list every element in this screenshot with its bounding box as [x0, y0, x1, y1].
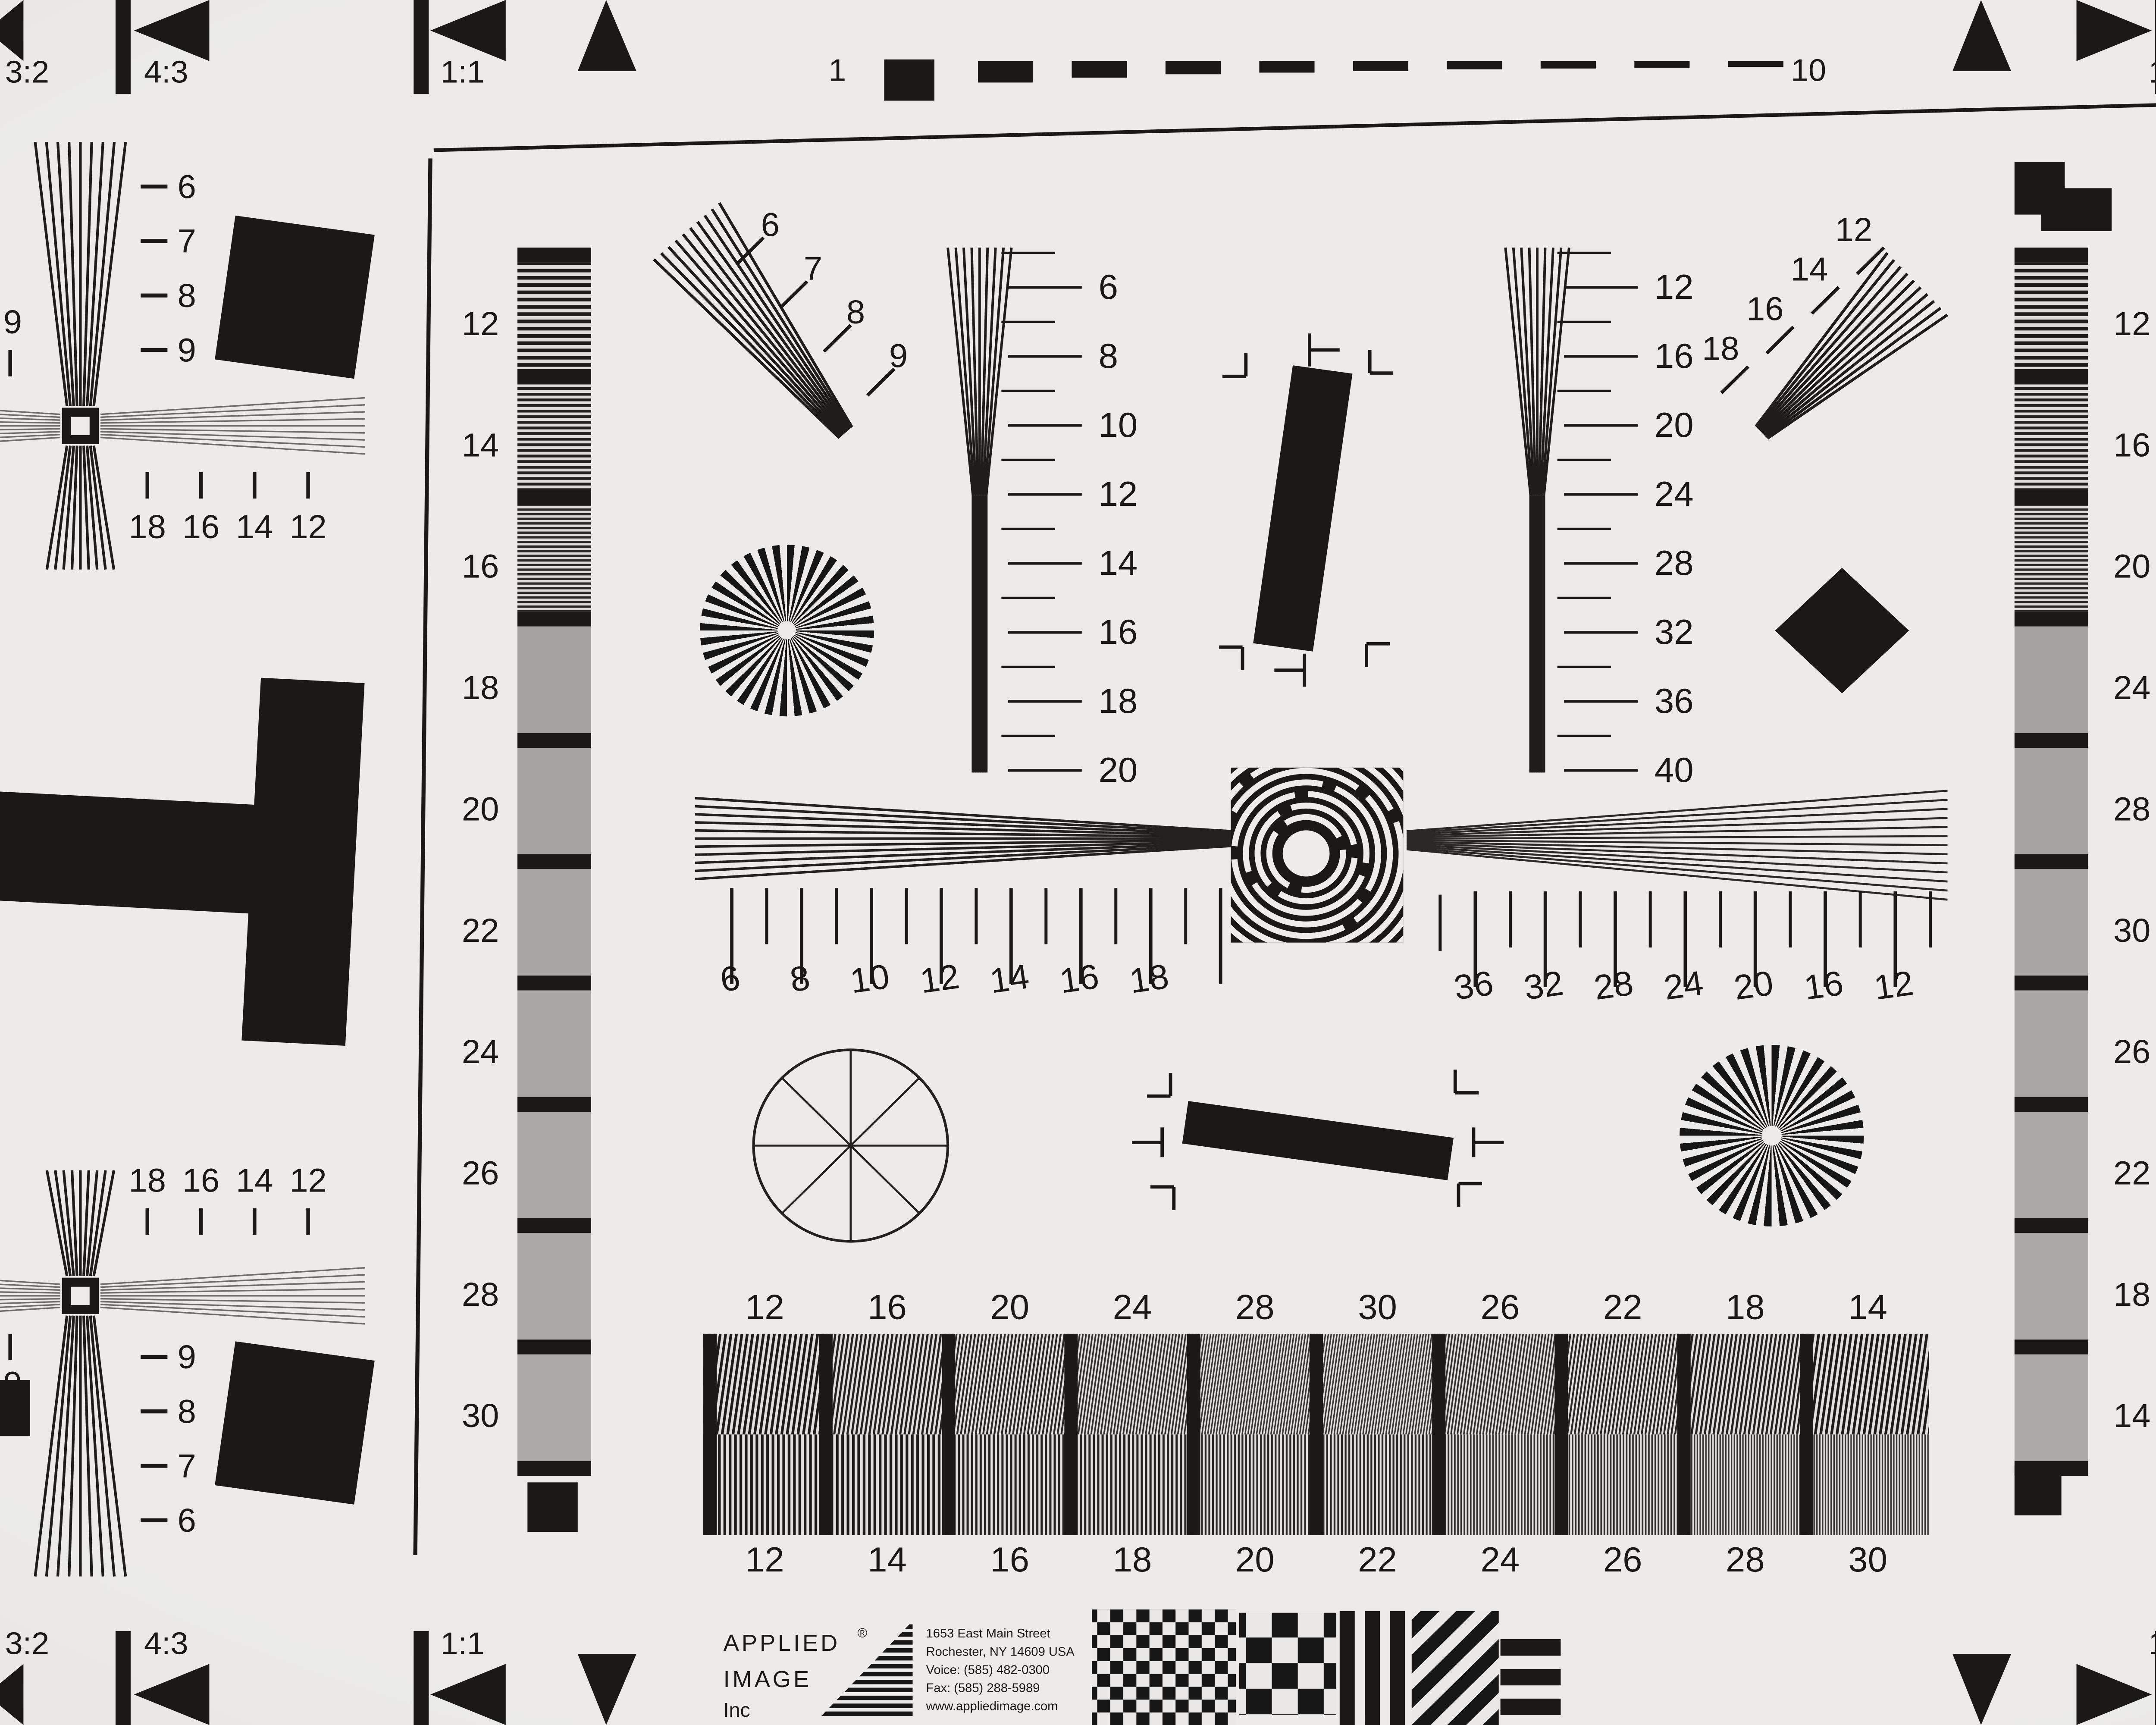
tick-mark: [306, 1208, 310, 1235]
freq-label: 24: [1480, 1541, 1520, 1579]
column-label: 30: [462, 1398, 499, 1434]
column-segment: [2015, 384, 2088, 490]
wedge-line: [1407, 791, 1947, 831]
tick-mark: [145, 472, 149, 499]
ruler-dash: [1072, 61, 1127, 78]
freq-label: 18: [1726, 1288, 1765, 1327]
cross-center-hole: [71, 1287, 90, 1305]
freq-segment: [703, 1334, 826, 1434]
tick-mark: [253, 472, 257, 499]
freq-label: 26: [1603, 1541, 1642, 1579]
freq-segment: [949, 1434, 1071, 1535]
bar: [414, 1631, 429, 1725]
tick-mark: [306, 472, 310, 499]
column-segment: [2015, 991, 2088, 1097]
column-separator: [517, 1339, 591, 1354]
freq-separator: [1310, 1334, 1323, 1535]
freq-segment: [1316, 1434, 1438, 1535]
freq-segment: [1684, 1334, 1806, 1434]
logo-wordmark: Inc: [724, 1699, 750, 1721]
scale-label: 40: [1655, 751, 1694, 789]
triangle-marker-icon: [134, 0, 210, 61]
freq-separator: [942, 1334, 955, 1535]
logo-wordmark: IMAGE: [724, 1666, 812, 1692]
column-label: 24: [462, 1034, 499, 1070]
freq-label: 24: [1113, 1288, 1152, 1327]
column-segment: [2015, 627, 2088, 733]
aspect-label: 1:1: [440, 54, 485, 89]
freq-label: 28: [1235, 1288, 1275, 1327]
column-separator: [2015, 975, 2088, 990]
test-chart-photo: 3:24:31:11:14:33:23:24:31:11:14:33:2 110…: [0, 0, 2156, 1725]
wedge-line: [780, 282, 807, 308]
freq-separator: [1187, 1334, 1200, 1535]
tilted-square: [215, 216, 375, 379]
column-segment: [517, 1355, 591, 1461]
column-separator: [2015, 612, 2088, 626]
freq-segment: [826, 1334, 948, 1434]
tick-mark: [253, 1208, 257, 1235]
column-segment: [517, 627, 591, 733]
column-label: 20: [2113, 548, 2150, 585]
wedge-line: [0, 398, 60, 414]
column-separator: [517, 1461, 591, 1476]
freq-separator: [1554, 1334, 1568, 1535]
aspect-label: 4:3: [144, 54, 188, 89]
wedge-line: [695, 798, 1231, 831]
freq-label: 20: [990, 1288, 1029, 1327]
horizontal-bar: [1501, 1699, 1561, 1715]
freq-segment: [1194, 1334, 1316, 1434]
ruler-dash: [1634, 61, 1689, 68]
column-separator: [517, 854, 591, 869]
tick-mark: [199, 472, 203, 499]
horizontal-bar: [1501, 1639, 1561, 1656]
column-separator: [2015, 854, 2088, 869]
triangle-marker-icon: [134, 1664, 210, 1725]
checkerboard-coarse: [1239, 1613, 1336, 1715]
tick-mark: [145, 1208, 149, 1235]
freq-segment: [1561, 1334, 1684, 1434]
wedge-line: [0, 1308, 60, 1324]
column-separator: [517, 490, 591, 505]
wedge-label: 8: [178, 277, 196, 314]
logo-address-line: www.appliedimage.com: [926, 1700, 1058, 1713]
cross-center-hole: [71, 417, 90, 435]
column-segment: [517, 505, 591, 612]
vertical-bar: [1340, 1611, 1355, 1725]
column-label: 22: [462, 912, 499, 949]
edge-partial-block: [0, 1380, 30, 1436]
diagonal-stripes: [1412, 1611, 1499, 1725]
column-segment: [517, 384, 591, 490]
column-separator: [2015, 248, 2088, 262]
freq-label: 14: [868, 1541, 907, 1579]
bracket-tab: [2015, 1466, 2062, 1515]
aspect-label: 1:1: [440, 1626, 485, 1661]
wedge-line: [0, 437, 60, 454]
freq-label: 22: [1603, 1288, 1642, 1327]
bar: [414, 0, 429, 94]
star-hub: [777, 621, 796, 640]
bracket-tab: [527, 1482, 578, 1532]
scale-label: 36: [1655, 682, 1694, 720]
wedge-line: [695, 846, 1231, 879]
siemens-star-icon: [700, 545, 874, 716]
freq-separator: [1432, 1334, 1445, 1535]
wedge-line: [1764, 294, 1927, 434]
tick-label: 18: [129, 1162, 166, 1199]
wedge-label: 9: [889, 338, 908, 374]
label-dash: [141, 185, 167, 188]
logo-wordmark: APPLIED: [724, 1630, 840, 1656]
down-triangle-icon: [1952, 1654, 2011, 1725]
column-segment: [2015, 505, 2088, 612]
freq-segment: [1071, 1334, 1194, 1434]
wedge-line: [434, 104, 2156, 150]
column-separator: [517, 369, 591, 384]
logo-address-line: 1653 East Main Street: [926, 1627, 1050, 1640]
wedge-line: [705, 215, 849, 429]
scale-label: 32: [1655, 613, 1694, 651]
scale-label: 12: [1655, 268, 1694, 306]
freq-segment: [826, 1434, 948, 1535]
column-separator: [517, 1097, 591, 1112]
logo-address-line: Voice: (585) 482-0300: [926, 1663, 1050, 1677]
column-separator: [2015, 1339, 2088, 1354]
scale-label: 12: [918, 957, 962, 1001]
column-segment: [2015, 263, 2088, 369]
wedge-label: 14: [1791, 251, 1828, 288]
wedge-line: [415, 158, 430, 1555]
freq-label: 14: [1848, 1288, 1887, 1327]
freq-segment: [1807, 1434, 1929, 1535]
freq-label: 30: [1848, 1541, 1887, 1579]
column-segment: [517, 748, 591, 854]
t-bar-left: [0, 662, 364, 1046]
scale-label: 28: [1655, 544, 1694, 582]
freq-label: 12: [745, 1541, 784, 1579]
wedge-line: [1767, 327, 1793, 353]
freq-separator: [1064, 1334, 1078, 1535]
aspect-label: 1:1: [2149, 54, 2156, 89]
wedge-label: 7: [178, 223, 196, 260]
freq-segment: [1684, 1434, 1806, 1535]
column-separator: [517, 248, 591, 262]
column-segment: [2015, 1355, 2088, 1461]
scale-label: 16: [1099, 613, 1138, 651]
diamond-icon: [1775, 568, 1909, 693]
column-label: 26: [2113, 1034, 2150, 1070]
column-separator: [2015, 1218, 2088, 1233]
column-label: 18: [2113, 1276, 2150, 1313]
column-segment: [517, 869, 591, 975]
wedge-label: 8: [846, 294, 865, 331]
t-bar-head: [241, 678, 364, 1046]
scale-label: 14: [987, 957, 1031, 1001]
column-label: 12: [462, 306, 499, 342]
column-segment: [517, 1112, 591, 1218]
scale-label: 36: [1451, 964, 1495, 1007]
scale-label: 16: [1802, 964, 1846, 1007]
freq-separator: [703, 1334, 717, 1535]
siemens-star-icon: [1680, 1045, 1864, 1226]
wedge-label: 18: [1702, 330, 1739, 367]
wedge-line: [0, 1268, 60, 1284]
triangle-marker-icon: [2077, 0, 2152, 61]
bottom-test-patterns: [1092, 1609, 1561, 1725]
scale-label: 28: [1592, 964, 1636, 1007]
bracket-tab: [2041, 188, 2112, 231]
slanted-bar: [1253, 365, 1352, 652]
freq-segment: [1439, 1434, 1561, 1535]
column-segment: [517, 991, 591, 1097]
ruler-dash: [884, 60, 934, 101]
ruler-dash: [978, 61, 1033, 83]
bar: [116, 1631, 131, 1725]
tick-label: 12: [289, 1162, 326, 1199]
ruler-dash: [1259, 61, 1314, 73]
up-triangle-icon: [578, 0, 636, 71]
aspect-label: 3:2: [5, 54, 50, 89]
aspect-label: 1:1: [2149, 1626, 2156, 1661]
freq-label: 16: [868, 1288, 907, 1327]
chart-canvas: 3:24:31:11:14:33:23:24:31:11:14:33:2 110…: [0, 0, 2156, 1725]
tick-mark: [8, 1334, 12, 1360]
label-dash: [141, 1518, 167, 1522]
freq-segment: [949, 1334, 1071, 1434]
freq-label: 30: [1358, 1288, 1397, 1327]
wedge-label: 9: [178, 332, 196, 369]
edge-label: 9: [3, 304, 22, 341]
scale-label: 20: [1099, 751, 1138, 789]
wedge-line: [1812, 287, 1839, 314]
column-separator: [517, 975, 591, 990]
column-label: 24: [2113, 670, 2150, 706]
freq-segment: [1194, 1434, 1316, 1535]
column-label: 20: [462, 791, 499, 828]
column-label: 28: [2113, 791, 2150, 828]
column-label: 18: [462, 670, 499, 706]
registered-icon: ®: [857, 1625, 867, 1640]
freq-label: 20: [1235, 1541, 1275, 1579]
label-dash: [141, 239, 167, 243]
scale-label: 18: [1099, 682, 1138, 720]
wedge-line: [697, 222, 848, 431]
tick-label: 14: [236, 508, 273, 545]
t-bar-stem: [0, 789, 261, 914]
wedge-label: 6: [178, 1502, 196, 1539]
scale-label: 8: [1099, 337, 1118, 375]
logo-address-line: Rochester, NY 14609 USA: [926, 1645, 1075, 1659]
scale-label: 12: [1099, 475, 1138, 513]
horizontal-bar: [1501, 1669, 1561, 1685]
tilted-square: [215, 1341, 375, 1504]
ruler-dash: [1541, 61, 1596, 69]
aspect-label: 3:2: [5, 1626, 50, 1661]
ruler-end-label: 10: [1791, 53, 1826, 88]
triangle-marker-icon: [0, 1664, 23, 1725]
ruler-dash: [1728, 61, 1783, 67]
wedge-label: 16: [1746, 291, 1783, 327]
checkerboard-fine: [1092, 1609, 1236, 1725]
freq-label: 22: [1358, 1541, 1397, 1579]
freq-separator: [819, 1334, 833, 1535]
label-dash: [141, 348, 167, 352]
scale-label: 12: [1871, 964, 1915, 1007]
freq-segment: [1807, 1334, 1929, 1434]
label-dash: [141, 1409, 167, 1413]
bullseye-center: [1283, 830, 1330, 876]
freq-segment: [703, 1434, 826, 1535]
column-label: 30: [2113, 912, 2150, 949]
wedge-label: 12: [1835, 211, 1872, 248]
scale-label: 6: [718, 959, 743, 1000]
freq-separator: [1677, 1334, 1691, 1535]
column-label: 22: [2113, 1155, 2150, 1192]
scale-label: 18: [1127, 957, 1171, 1001]
column-separator: [517, 1218, 591, 1233]
column-label: 12: [2113, 306, 2150, 342]
star-hub: [1761, 1126, 1782, 1145]
wedge-line: [1761, 280, 1914, 432]
column-separator: [2015, 733, 2088, 748]
tick-label: 12: [289, 508, 326, 545]
wedge-line: [1721, 367, 1748, 393]
triangle-marker-icon: [2077, 1664, 2152, 1725]
column-segment: [2015, 1112, 2088, 1218]
scale-label: 10: [1099, 406, 1138, 444]
scale-label: 6: [1099, 268, 1118, 306]
wedge-label: 7: [804, 250, 822, 287]
triangle-marker-icon: [430, 1664, 506, 1725]
column-segment: [517, 263, 591, 369]
scale-label: 20: [1732, 964, 1776, 1007]
triangle-marker-icon: [0, 0, 23, 61]
top-dash-ruler: 110: [828, 53, 1826, 100]
slanted-bar: [1182, 1101, 1454, 1180]
label-dash: [141, 294, 167, 298]
vertical-bar: [1365, 1611, 1380, 1725]
slanted-bar-vertical: [1253, 365, 1352, 652]
column-separator: [2015, 369, 2088, 384]
wedge-line: [1407, 849, 1947, 900]
down-triangle-icon: [578, 1654, 636, 1725]
column-segment: [2015, 869, 2088, 975]
freq-label: 12: [745, 1288, 784, 1327]
tick-label: 16: [182, 508, 219, 545]
wedge-label: 8: [178, 1393, 196, 1430]
freq-label: 16: [990, 1541, 1029, 1579]
freq-segment: [1316, 1334, 1438, 1434]
column-separator: [517, 733, 591, 748]
wedge-line: [1762, 287, 1921, 433]
column-label: 16: [462, 548, 499, 585]
column-label: 28: [462, 1276, 499, 1313]
tick-label: 18: [129, 508, 166, 545]
aspect-label: 4:3: [144, 1626, 188, 1661]
black-diamond: [1775, 568, 1909, 693]
column-label: 14: [462, 427, 499, 464]
ruler-dash: [1447, 61, 1502, 69]
ruler-dash: [1166, 61, 1221, 75]
logo-address-line: Fax: (585) 288-5989: [926, 1681, 1040, 1695]
column-label: 16: [2113, 427, 2150, 464]
freq-label: 28: [1726, 1541, 1765, 1579]
scale-label: 20: [1655, 406, 1694, 444]
wedge-label: 7: [178, 1448, 196, 1484]
scale-label: 16: [1655, 337, 1694, 375]
column-segment: [517, 1233, 591, 1339]
column-separator: [517, 612, 591, 626]
scale-label: 14: [1099, 544, 1138, 582]
wedge-line: [690, 228, 846, 432]
scale-label: 8: [787, 959, 812, 1000]
tick-mark: [199, 1208, 203, 1235]
label-dash: [141, 1355, 167, 1359]
up-triangle-icon: [1952, 0, 2011, 71]
wedge-label: 9: [178, 1339, 196, 1376]
scale-label: 10: [848, 957, 892, 1001]
applied-image-logo: APPLIED®IMAGEInc1653 East Main StreetRoc…: [724, 1621, 1075, 1721]
freq-label: 18: [1113, 1541, 1152, 1579]
tick-mark: [8, 350, 12, 376]
slanted-bar-horizontal: [1182, 1101, 1454, 1180]
freq-segment: [1439, 1334, 1561, 1434]
tick-label: 16: [182, 1162, 219, 1199]
column-segment: [2015, 748, 2088, 854]
column-segment: [2015, 1233, 2088, 1339]
vertical-bar: [1390, 1611, 1405, 1725]
bottom-frequency-bar: 1212161420162418282030222624222618281430: [703, 1288, 1929, 1579]
ruler-start-label: 1: [828, 53, 846, 88]
wedge-label: 6: [178, 169, 196, 205]
label-dash: [141, 1464, 167, 1468]
wedge-line: [1765, 301, 1934, 436]
column-label: 14: [2113, 1398, 2150, 1434]
wedge-label: 6: [761, 207, 780, 243]
column-separator: [2015, 1097, 2088, 1112]
freq-segment: [1561, 1434, 1684, 1535]
freq-separator: [1800, 1334, 1813, 1535]
column-label: 26: [462, 1155, 499, 1192]
scale-label: 16: [1057, 957, 1101, 1001]
scale-label: 24: [1661, 964, 1705, 1007]
bar: [116, 0, 131, 94]
scale-label: 24: [1655, 475, 1694, 513]
tick-label: 14: [236, 1162, 273, 1199]
spoked-circle: [754, 1050, 948, 1241]
triangle-marker-icon: [430, 0, 506, 61]
freq-segment: [1071, 1434, 1194, 1535]
ruler-dash: [1353, 61, 1408, 71]
column-separator: [2015, 490, 2088, 505]
freq-label: 26: [1480, 1288, 1520, 1327]
scale-label: 32: [1522, 964, 1566, 1007]
